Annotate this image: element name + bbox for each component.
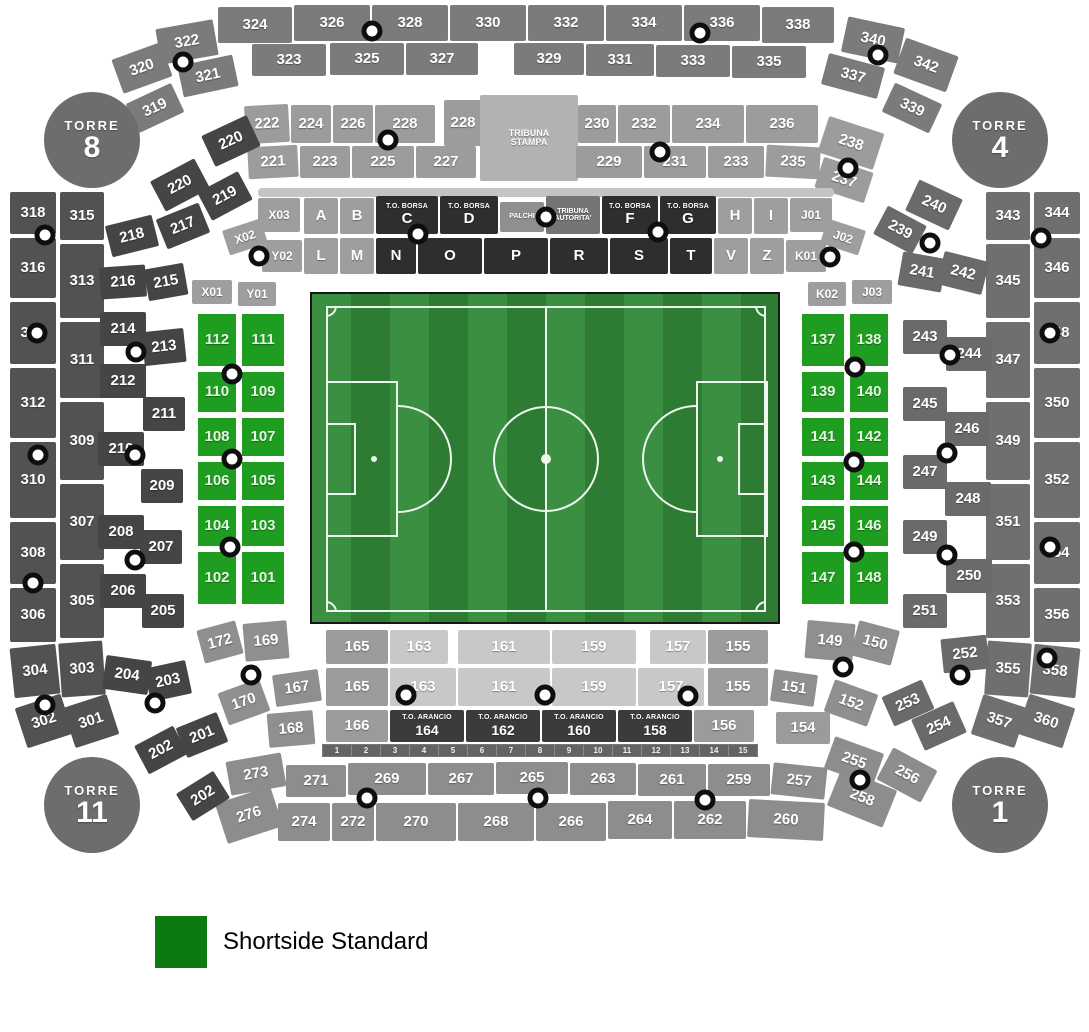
section-220: 220 <box>150 158 210 211</box>
section-label: 235 <box>780 153 806 170</box>
section-label: 327 <box>429 51 454 67</box>
gate-marker <box>695 790 716 811</box>
section-label: 272 <box>340 814 365 830</box>
section-163: 163 <box>390 630 448 664</box>
section-233: 233 <box>708 146 764 178</box>
section-o: O <box>418 238 482 274</box>
pitch-corner-arc-bottom-left <box>315 601 337 623</box>
row-number: 11 <box>613 745 642 756</box>
gate-marker <box>850 770 871 791</box>
gate-marker <box>408 224 429 245</box>
tower-8: TORRE8 <box>44 92 140 188</box>
section-label: 243 <box>912 329 937 345</box>
section-label: 245 <box>912 396 937 412</box>
section-sub-label: T.O. BORSA <box>386 203 428 211</box>
section-label: 254 <box>924 714 953 739</box>
pitch-centre-spot <box>541 454 551 464</box>
row-number: 9 <box>555 745 584 756</box>
section-349: 349 <box>986 402 1030 480</box>
section-label: 253 <box>893 691 922 716</box>
section-label: 162 <box>491 723 514 738</box>
section-162: T.O. ARANCIO162 <box>466 710 540 742</box>
section-label: 230 <box>584 116 609 132</box>
section-label: 266 <box>558 814 583 830</box>
section-label: 344 <box>1044 205 1069 221</box>
section-label: 329 <box>536 51 561 67</box>
section-label: Y02 <box>271 250 292 263</box>
section-112[interactable]: 112 <box>196 312 238 368</box>
football-pitch <box>310 292 780 624</box>
tower-number: 11 <box>76 798 108 828</box>
section-326: 326 <box>294 5 370 41</box>
gate-marker <box>833 657 854 678</box>
section-label: 144 <box>856 473 881 489</box>
section-338: 338 <box>762 7 834 43</box>
section-345: 345 <box>986 244 1030 318</box>
section-228: 228 <box>444 100 482 146</box>
section-168: 168 <box>267 710 316 748</box>
section-105[interactable]: 105 <box>240 460 286 502</box>
gate-marker <box>28 445 49 466</box>
section-label: G <box>682 211 694 227</box>
section-label: 148 <box>856 570 881 586</box>
section-label: 143 <box>810 473 835 489</box>
section-label: 204 <box>114 665 141 684</box>
tower-number: 4 <box>992 133 1009 163</box>
section-label: 350 <box>1044 395 1069 411</box>
section-label: 312 <box>20 395 45 411</box>
section-label: 164 <box>415 723 438 738</box>
section-246: 246 <box>945 412 989 446</box>
section-312: 312 <box>10 368 56 438</box>
section-label: 156 <box>711 718 736 734</box>
section-316: 316 <box>10 238 56 298</box>
section-label: 105 <box>250 473 275 489</box>
gate-marker <box>35 695 56 716</box>
gate-marker <box>220 537 241 558</box>
pitch-corner-arc-top-right <box>755 295 777 317</box>
section-label: 158 <box>643 723 666 738</box>
legend-label: Shortside Standard <box>223 928 428 956</box>
pitch-penalty-spot-left <box>371 456 377 462</box>
gate-marker <box>126 342 147 363</box>
gate-marker <box>535 685 556 706</box>
section-label: 220 <box>165 172 194 198</box>
section-label: 250 <box>956 568 981 584</box>
section-103[interactable]: 103 <box>240 504 286 548</box>
section-label: 305 <box>69 593 94 609</box>
section-label: 165 <box>344 639 369 655</box>
section-label: 337 <box>839 65 867 87</box>
section-label: 346 <box>1044 260 1069 276</box>
gate-marker <box>173 52 194 73</box>
section-label: 233 <box>723 154 748 170</box>
section-g: T.O. BORSAG <box>660 196 716 234</box>
section-label: 252 <box>952 645 979 663</box>
section-k02: K02 <box>808 282 846 306</box>
section-label: 221 <box>260 153 286 170</box>
section-label: N <box>391 248 402 264</box>
section-label: T <box>686 248 695 264</box>
section-label: 351 <box>995 514 1020 530</box>
section-label: 215 <box>152 272 179 292</box>
section-268: 268 <box>458 803 534 841</box>
section-label: 139 <box>810 384 835 400</box>
section-label: 141 <box>810 429 835 445</box>
section-329: 329 <box>514 43 584 75</box>
section-170: 170 <box>218 679 271 726</box>
section-101[interactable]: 101 <box>240 550 286 606</box>
row-number: 2 <box>352 745 381 756</box>
tower-4: TORRE4 <box>952 92 1048 188</box>
section-335: 335 <box>732 46 806 78</box>
section-label: 325 <box>354 51 379 67</box>
section-215: 215 <box>144 263 189 301</box>
section-149: 149 <box>804 620 855 662</box>
section-label: 213 <box>151 338 178 356</box>
section-label: 166 <box>344 718 369 734</box>
section-label: 202 <box>146 737 175 763</box>
gate-marker <box>23 573 44 594</box>
section-label: 104 <box>204 518 229 534</box>
section-r: R <box>550 238 608 274</box>
section-label: 260 <box>773 811 799 828</box>
section-339: 339 <box>882 83 943 134</box>
section-313: 313 <box>60 244 104 318</box>
section-160: T.O. ARANCIO160 <box>542 710 616 742</box>
section-label: 307 <box>69 514 94 530</box>
section-label: M <box>351 248 364 264</box>
section-label: 167 <box>284 678 311 697</box>
row-number: 4 <box>410 745 439 756</box>
section-156: 156 <box>694 710 754 742</box>
section-155: 155 <box>708 630 768 664</box>
section-327: 327 <box>406 43 478 75</box>
section-label: 102 <box>204 570 229 586</box>
section-266: 266 <box>536 803 606 841</box>
section-sub-label: T.O. BORSA <box>667 203 709 211</box>
gate-marker <box>27 323 48 344</box>
section-label: 357 <box>985 710 1014 733</box>
section-213: 213 <box>141 328 186 366</box>
section-d: T.O. BORSAD <box>440 196 498 234</box>
section-label: 264 <box>627 812 652 828</box>
section-label: 152 <box>837 691 866 714</box>
section-159: 159 <box>552 668 636 706</box>
section-label: 108 <box>204 429 229 445</box>
section-229: 229 <box>576 146 642 178</box>
section-label: 256 <box>892 762 921 788</box>
section-label: 161 <box>491 639 516 655</box>
section-label: 248 <box>955 491 980 507</box>
section-z: Z <box>750 238 784 274</box>
section-172: 172 <box>196 620 243 663</box>
section-label: 101 <box>250 570 275 586</box>
gate-marker <box>920 233 941 254</box>
section-label: 207 <box>148 539 173 555</box>
section-261: 261 <box>638 764 706 796</box>
section-label: B <box>352 208 363 224</box>
section-273: 273 <box>225 752 286 795</box>
section-145[interactable]: 145 <box>800 504 846 548</box>
section-102[interactable]: 102 <box>196 550 238 606</box>
section-label: 326 <box>319 15 344 31</box>
section-109[interactable]: 109 <box>240 370 286 414</box>
row-number: 7 <box>497 745 526 756</box>
section-sub-label: T.O. ARANCIO <box>402 714 452 722</box>
section-label: 322 <box>173 32 200 52</box>
section-label: 211 <box>152 406 176 422</box>
row-number-strip: 123456789101112131415 <box>322 744 758 757</box>
section-152: 152 <box>824 679 879 727</box>
section-315: 315 <box>60 192 104 240</box>
section-label: P <box>511 248 521 264</box>
section-158: T.O. ARANCIO158 <box>618 710 692 742</box>
section-248: 248 <box>945 482 991 516</box>
section-label: PALCHI <box>509 213 535 220</box>
section-353: 353 <box>986 564 1030 638</box>
section-label: 147 <box>810 570 835 586</box>
section-label: H <box>730 208 741 224</box>
section-219: 219 <box>197 171 253 221</box>
section-t: T <box>670 238 712 274</box>
section-166: 166 <box>326 710 388 742</box>
section-label: 349 <box>995 433 1020 449</box>
section-242: 242 <box>937 251 990 295</box>
section-334: 334 <box>606 5 682 41</box>
section-147[interactable]: 147 <box>800 550 846 606</box>
section-224: 224 <box>291 105 331 143</box>
gate-marker <box>868 45 889 66</box>
section-label: 229 <box>596 154 621 170</box>
section-label: 309 <box>69 433 94 449</box>
section-label: 225 <box>370 154 395 170</box>
row-number: 14 <box>700 745 729 756</box>
section-236: 236 <box>746 105 818 143</box>
section-label: TRIBUNA STAMPA <box>509 129 550 148</box>
section-label: F <box>625 211 634 227</box>
section-label: 236 <box>769 116 794 132</box>
section-label: 273 <box>242 764 269 784</box>
row-number: 10 <box>584 745 613 756</box>
section-label: 159 <box>581 679 606 695</box>
section-label: 163 <box>406 639 431 655</box>
section-143[interactable]: 143 <box>800 460 846 502</box>
section-label: 345 <box>995 273 1020 289</box>
section-330: 330 <box>450 5 526 41</box>
row-number: 3 <box>381 745 410 756</box>
section-label: 333 <box>680 53 705 69</box>
section-111[interactable]: 111 <box>240 312 286 368</box>
section-label: 251 <box>912 603 937 619</box>
section-230: 230 <box>578 105 616 143</box>
section-label: 316 <box>20 260 45 276</box>
gate-marker <box>1040 537 1061 558</box>
section-x01: X01 <box>192 280 232 304</box>
section-label: 334 <box>631 15 656 31</box>
section-167: 167 <box>272 669 322 707</box>
section-139[interactable]: 139 <box>800 370 846 414</box>
section-label: V <box>726 248 736 264</box>
section-label: 107 <box>250 429 275 445</box>
section-label: X02 <box>233 228 257 247</box>
section-226: 226 <box>333 105 373 143</box>
section-141[interactable]: 141 <box>800 416 846 458</box>
section-label: 315 <box>69 208 94 224</box>
section-l: L <box>304 238 338 274</box>
section-label: 306 <box>20 607 45 623</box>
section-label: 343 <box>995 208 1020 224</box>
section-271: 271 <box>286 765 346 797</box>
section-label: 303 <box>69 660 95 677</box>
section-234: 234 <box>672 105 744 143</box>
section-label: 103 <box>250 518 275 534</box>
section-label: 226 <box>340 116 365 132</box>
section-250: 250 <box>946 559 992 593</box>
section-label: 155 <box>725 679 750 695</box>
section-label: 257 <box>786 772 813 790</box>
section-342: 342 <box>893 38 959 93</box>
section-label: TRIBUNA AUTORITA' <box>554 208 591 223</box>
section-label: 219 <box>210 183 239 209</box>
section-251: 251 <box>903 594 947 628</box>
pitch-corner-arc-bottom-right <box>755 601 777 623</box>
gate-marker <box>950 665 971 686</box>
section-label: 321 <box>194 66 222 87</box>
section-label: 301 <box>77 710 106 733</box>
section-label: 318 <box>20 205 45 221</box>
section-216: 216 <box>99 264 147 299</box>
section-227: 227 <box>416 146 476 178</box>
gate-marker <box>222 449 243 470</box>
section-212: 212 <box>100 364 146 398</box>
section-label: 276 <box>235 804 264 827</box>
section-label: 111 <box>251 332 274 348</box>
gate-marker <box>35 225 56 246</box>
gate-marker <box>249 246 270 267</box>
section-label: 149 <box>817 632 843 650</box>
section-label: 232 <box>631 116 656 132</box>
section-223: 223 <box>300 146 350 178</box>
section-333: 333 <box>656 45 730 77</box>
section-label: 265 <box>519 770 544 786</box>
section-label: 331 <box>607 52 632 68</box>
gate-marker <box>222 364 243 385</box>
gate-marker <box>937 545 958 566</box>
section-356: 356 <box>1034 588 1080 642</box>
section-label: 320 <box>128 56 157 79</box>
section-label: 224 <box>298 116 323 132</box>
section-label: 270 <box>403 814 428 830</box>
section-360: 360 <box>1017 694 1076 749</box>
section-274: 274 <box>278 803 330 841</box>
section-m: M <box>340 238 374 274</box>
section-label: 324 <box>242 17 267 33</box>
section-label: 165 <box>344 679 369 695</box>
section-h: H <box>718 198 752 234</box>
section-260: 260 <box>747 799 825 841</box>
section-sub-label: T.O. ARANCIO <box>478 714 528 722</box>
section-272: 272 <box>332 803 374 841</box>
section-259: 259 <box>708 764 770 796</box>
section-label: 202 <box>188 783 218 810</box>
gate-marker <box>125 550 146 571</box>
stadium-seating-map-page: 123456789101112131415 320322324326328330… <box>0 0 1089 1032</box>
section-label: 223 <box>312 154 337 170</box>
section-235: 235 <box>765 145 821 180</box>
section-label: 240 <box>919 193 948 218</box>
row-number: 8 <box>526 745 555 756</box>
pitch-penalty-spot-right <box>717 456 723 462</box>
section-206: 206 <box>100 574 146 608</box>
section-sub-label: T.O. BORSA <box>448 203 490 211</box>
section-209: 209 <box>141 469 183 503</box>
stadium-map: 123456789101112131415 320322324326328330… <box>0 0 1089 880</box>
section-label: 157 <box>665 639 690 655</box>
section-label: 170 <box>230 690 259 713</box>
gate-marker <box>125 445 146 466</box>
section-225: 225 <box>352 146 414 178</box>
section-label: 160 <box>567 723 590 738</box>
gate-marker <box>648 222 669 243</box>
section-label: 271 <box>303 773 328 789</box>
section-label: 338 <box>785 17 810 33</box>
section-351: 351 <box>986 484 1030 560</box>
section-p: P <box>484 238 548 274</box>
gate-marker <box>357 788 378 809</box>
section-label: 274 <box>291 814 316 830</box>
section-label: 356 <box>1044 607 1069 623</box>
section-label: 205 <box>150 603 175 619</box>
section-label: K02 <box>816 288 838 301</box>
section-label: 168 <box>278 720 304 738</box>
gate-marker <box>844 452 865 473</box>
section-c: T.O. BORSAC <box>376 196 438 234</box>
section-157: 157 <box>650 630 706 664</box>
section-label: J02 <box>832 228 855 246</box>
row-number: 5 <box>439 745 468 756</box>
section-label: 336 <box>709 15 734 31</box>
section-159: 159 <box>552 630 636 664</box>
section-150: 150 <box>850 620 900 666</box>
section-label: 262 <box>697 812 722 828</box>
section-label: 222 <box>254 115 280 132</box>
section-label: 261 <box>659 772 684 788</box>
section-350: 350 <box>1034 368 1080 438</box>
row-number: 1 <box>323 745 352 756</box>
section-355: 355 <box>984 641 1032 698</box>
section-label: 212 <box>110 373 135 389</box>
section-label: 308 <box>20 545 45 561</box>
section-label: 347 <box>995 352 1020 368</box>
pitch-goal-area-left <box>326 423 356 495</box>
section-207: 207 <box>140 530 182 564</box>
section-label: J03 <box>862 286 882 299</box>
section-label: 227 <box>433 154 458 170</box>
section-label: 268 <box>483 814 508 830</box>
section-label: L <box>316 248 325 264</box>
section-270: 270 <box>376 803 456 841</box>
section-264: 264 <box>608 801 672 839</box>
section-357: 357 <box>971 694 1028 748</box>
section-107[interactable]: 107 <box>240 416 286 458</box>
section-137[interactable]: 137 <box>800 312 846 368</box>
section-j03: J03 <box>852 280 892 304</box>
gate-marker <box>844 542 865 563</box>
section-label: 206 <box>110 583 135 599</box>
section-label: 155 <box>725 639 750 655</box>
section-label: 263 <box>590 771 615 787</box>
